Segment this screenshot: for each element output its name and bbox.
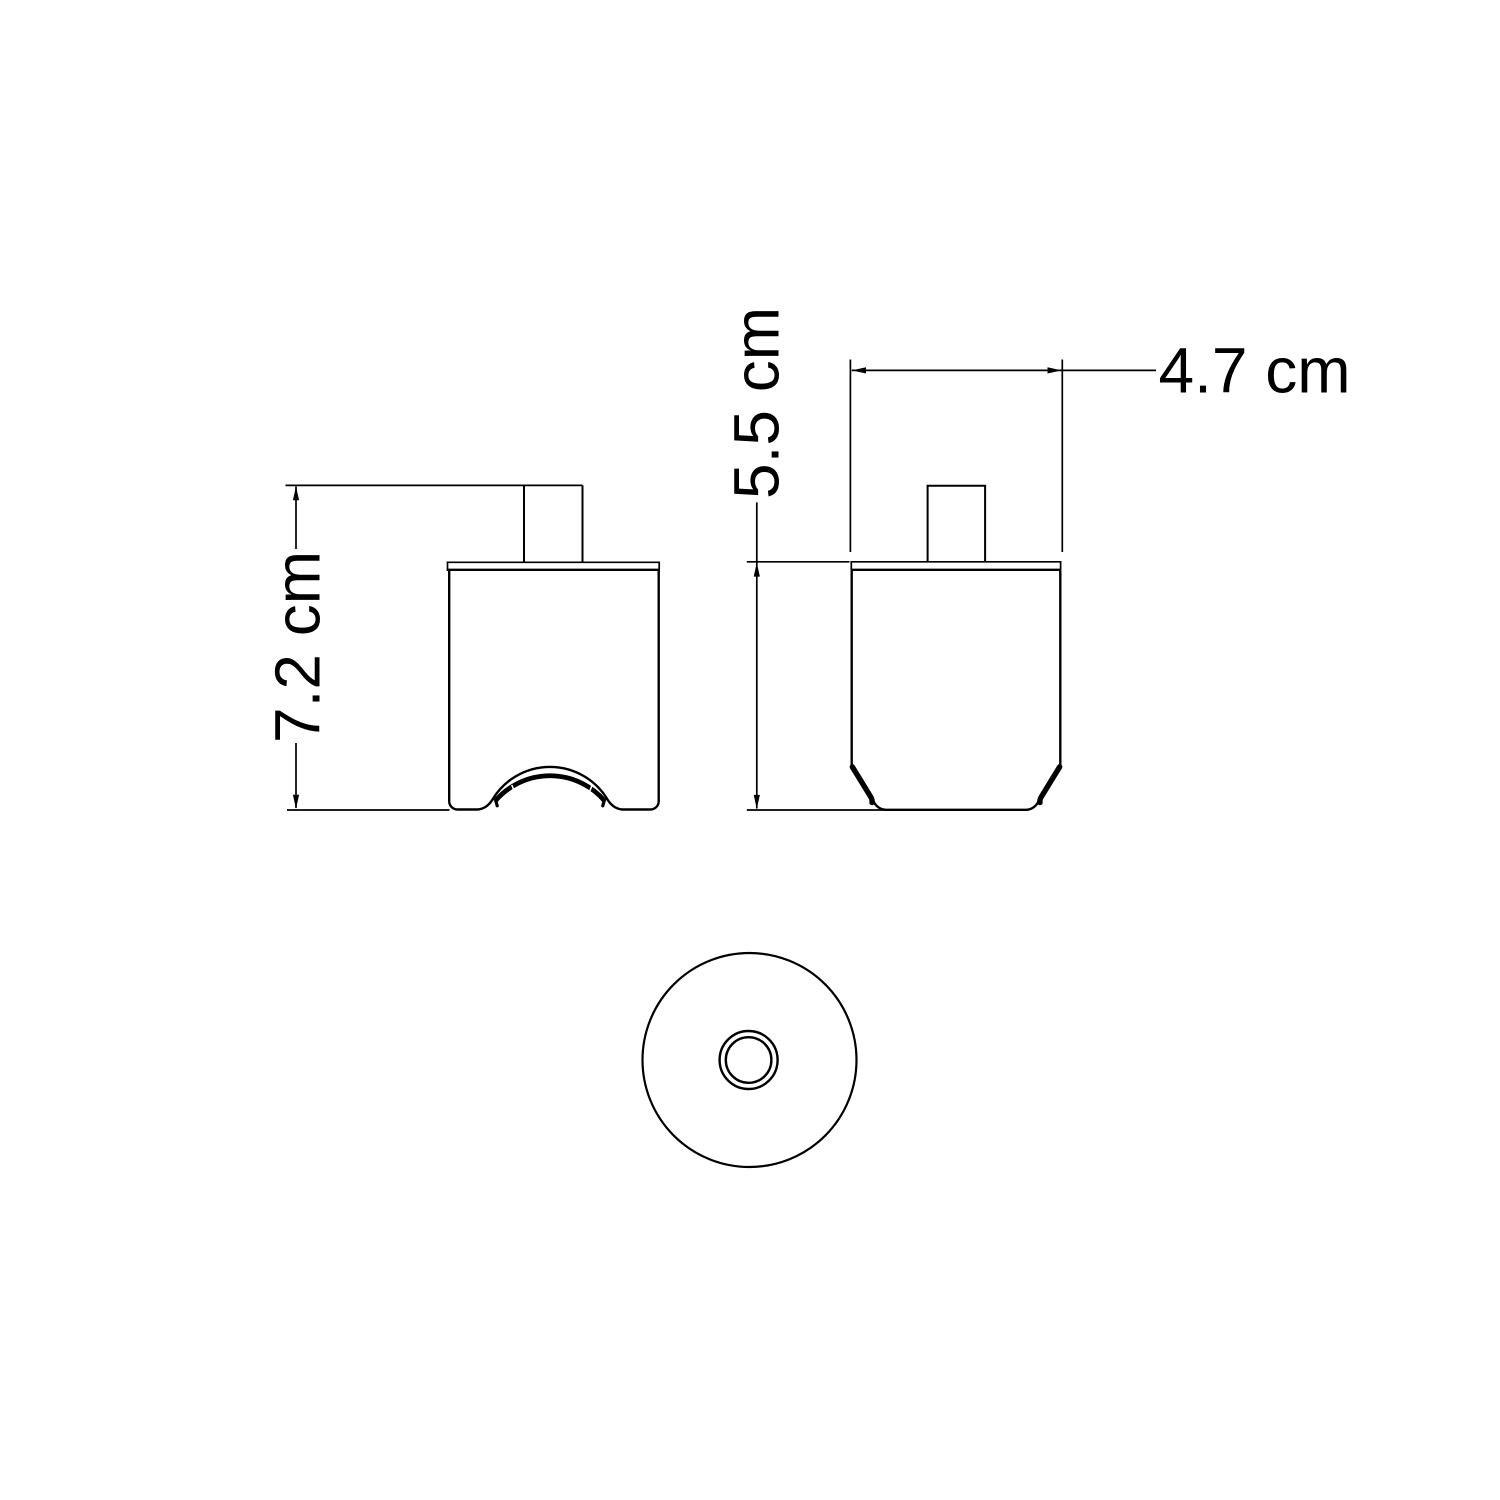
svg-text:4.7 cm: 4.7 cm — [1159, 334, 1351, 406]
svg-text:5.5 cm: 5.5 cm — [720, 307, 792, 499]
svg-text:7.2 cm: 7.2 cm — [262, 551, 334, 743]
